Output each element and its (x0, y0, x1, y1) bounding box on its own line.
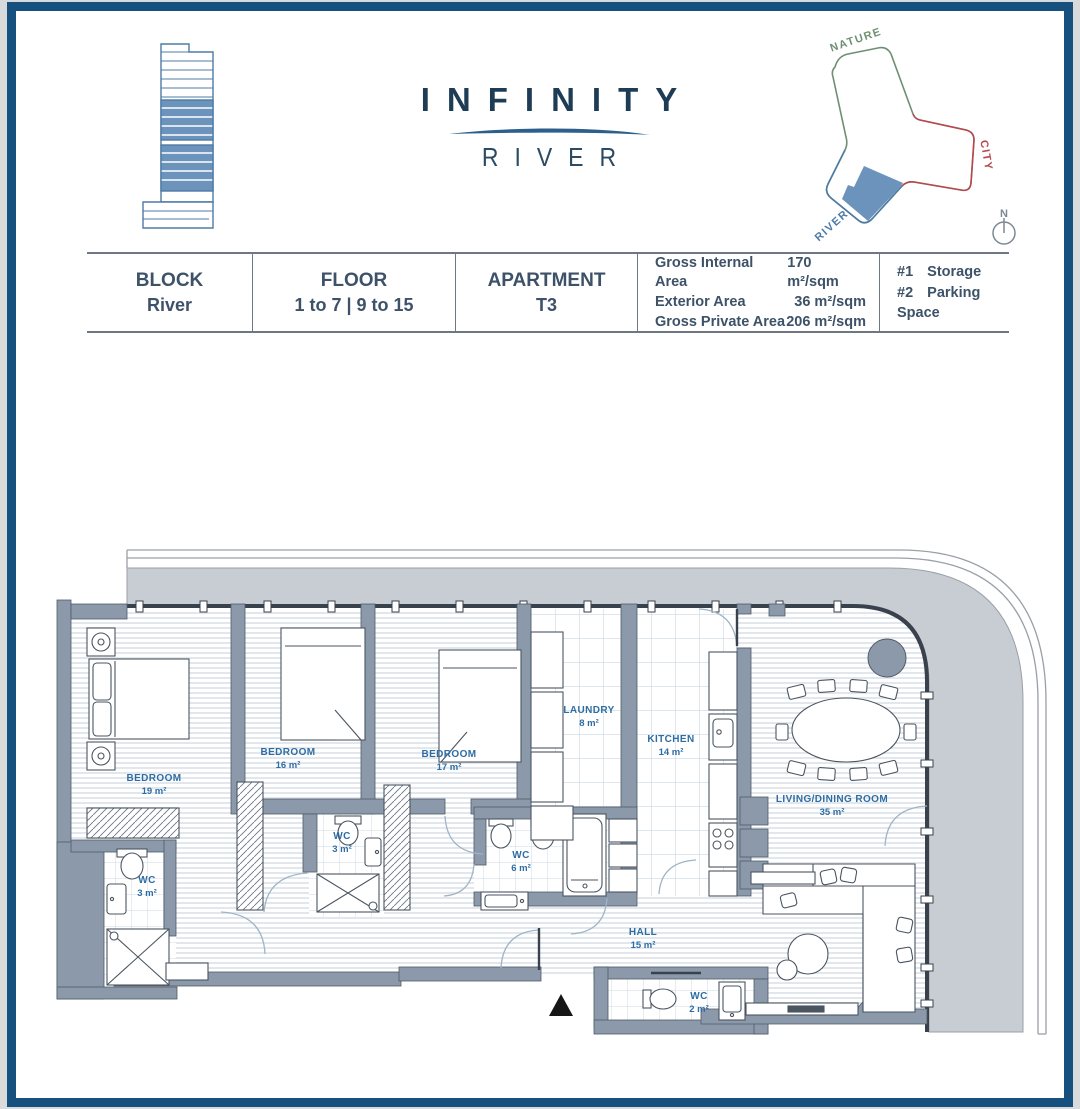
svg-text:LIVING/DINING ROOM: LIVING/DINING ROOM (776, 794, 888, 805)
apartment-label: APARTMENT (488, 270, 606, 292)
area-row: Gross Internal Area 170 m²/sqm (655, 254, 866, 292)
site-label-nature: NATURE (829, 26, 884, 55)
column (868, 639, 906, 677)
floor-value: 1 to 7 | 9 to 15 (294, 295, 413, 316)
svg-text:HALL: HALL (629, 927, 657, 938)
svg-text:14 m²: 14 m² (659, 747, 684, 758)
floor-label: FLOOR (321, 270, 388, 292)
svg-text:19 m²: 19 m² (142, 786, 167, 797)
cell-floor: FLOOR 1 to 7 | 9 to 15 (252, 254, 455, 333)
svg-text:WC: WC (138, 875, 155, 886)
tower-logo (137, 42, 233, 234)
swoosh-icon (447, 126, 652, 138)
extra-row: #1 Storage (897, 263, 981, 283)
site-label-river: RIVER (813, 208, 852, 244)
block-label: BLOCK (136, 270, 204, 292)
svg-text:BEDROOM: BEDROOM (260, 747, 315, 758)
page: INFINITY RIVER NATURE CITY RIVER N BLOCK… (7, 2, 1073, 1107)
compass-icon (993, 218, 1015, 244)
extra-label: #1 (897, 264, 913, 280)
extra-label: #2 (897, 285, 913, 301)
svg-text:KITCHEN: KITCHEN (647, 734, 694, 745)
svg-text:BEDROOM: BEDROOM (126, 773, 181, 784)
area-value: 36 m²/sqm (794, 293, 866, 312)
svg-text:8 m²: 8 m² (579, 718, 599, 729)
extra-value: Storage (927, 264, 981, 280)
cell-areas: Gross Internal Area 170 m²/sqm Exterior … (637, 254, 879, 333)
svg-text:2 m²: 2 m² (689, 1004, 709, 1015)
svg-text:16 m²: 16 m² (276, 760, 301, 771)
area-label: Gross Private Area (655, 313, 785, 332)
site-highlight-block (842, 166, 903, 221)
area-row: Exterior Area 36 m²/sqm (655, 293, 866, 312)
svg-text:WC: WC (690, 991, 707, 1002)
svg-text:BEDROOM: BEDROOM (421, 749, 476, 760)
svg-text:LAUNDRY: LAUNDRY (563, 705, 614, 716)
page-subtitle: RIVER (309, 142, 789, 172)
site-outline-city (902, 114, 974, 190)
page-title: INFINITY (309, 81, 789, 119)
apartment-value: T3 (536, 295, 557, 316)
cell-block: BLOCK River (87, 254, 252, 333)
extra-row: #2 Parking Space (897, 284, 1009, 323)
svg-text:WC: WC (512, 850, 529, 861)
info-table: BLOCK River FLOOR 1 to 7 | 9 to 15 APART… (87, 252, 1009, 333)
site-label-city: CITY (977, 139, 994, 172)
block-value: River (147, 295, 192, 316)
floor-plan: BEDROOM 19 m² BEDROOM 16 m² BEDROOM 17 m… (51, 542, 1055, 1108)
area-value: 170 m²/sqm (787, 254, 866, 292)
cell-extras: #1 Storage #2 Parking Space (879, 254, 1009, 333)
svg-text:35 m²: 35 m² (820, 807, 845, 818)
area-value: 206 m²/sqm (786, 313, 866, 332)
compass-n-label: N (1000, 208, 1008, 220)
entrance-arrow (549, 994, 573, 1016)
brand-block: INFINITY RIVER (309, 81, 789, 171)
svg-text:17 m²: 17 m² (437, 762, 462, 773)
area-label: Gross Internal Area (655, 254, 787, 292)
svg-text:WC: WC (333, 831, 350, 842)
site-diagram: NATURE CITY RIVER N (802, 25, 1042, 255)
area-label: Exterior Area (655, 293, 746, 312)
svg-text:3 m²: 3 m² (137, 888, 157, 899)
svg-text:6 m²: 6 m² (511, 863, 531, 874)
svg-text:15 m²: 15 m² (631, 940, 656, 951)
cell-apartment: APARTMENT T3 (455, 254, 637, 333)
area-row: Gross Private Area 206 m²/sqm (655, 313, 866, 332)
svg-text:3 m²: 3 m² (332, 844, 352, 855)
